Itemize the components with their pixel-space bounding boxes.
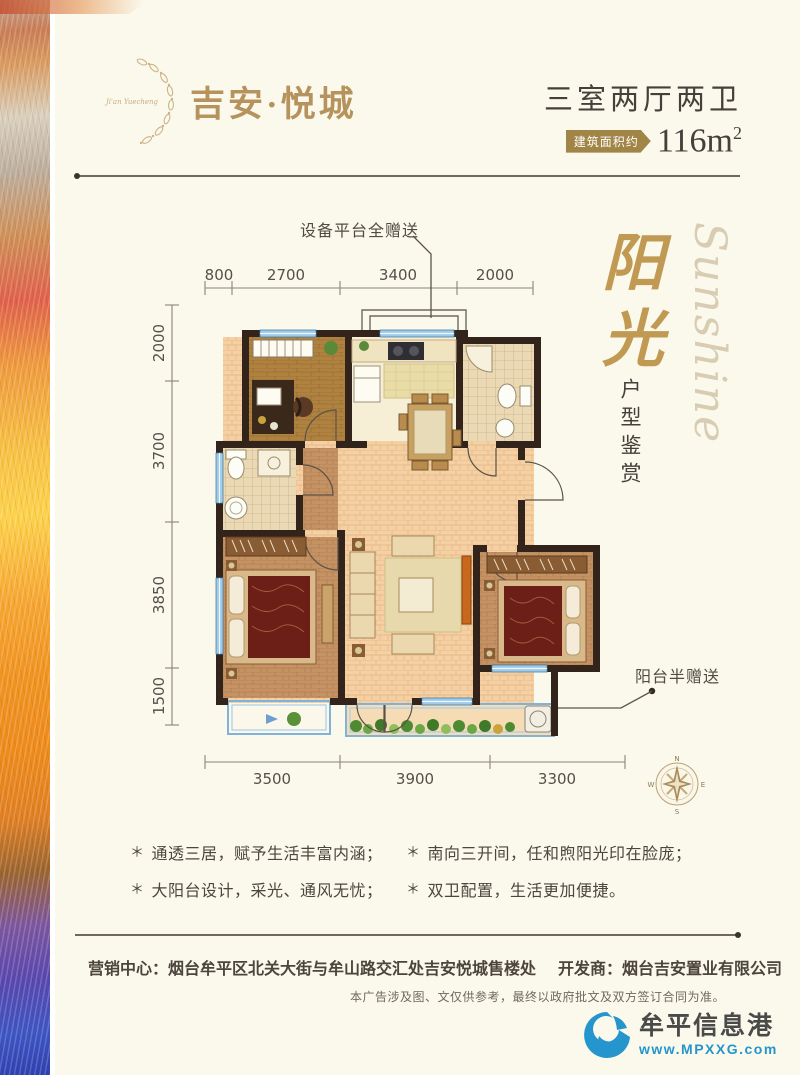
dim-bottom-3: 3300	[538, 770, 576, 788]
unit-type-title: 三室两厅两卫	[544, 76, 742, 118]
dim-left-3: 3850	[150, 576, 168, 614]
unit-info-block: 三室两厅两卫 建筑面积约 116m2	[544, 76, 742, 158]
brush-streaks-decoration	[0, 0, 150, 14]
poster-page: Ji'an Yuecheng 吉安·悦城 三室两厅两卫 建筑面积约 116m2	[0, 0, 800, 1075]
brand-name: 吉安·悦城	[190, 76, 357, 127]
floorplan-drawing: 800 2700 3400 2000 2000 3700 3850 1500 3…	[150, 200, 765, 825]
sunshine-english-title: Sunshine	[684, 222, 735, 492]
brand-block: Ji'an Yuecheng 吉安·悦城	[80, 52, 357, 150]
platform-callout: 设备平台全赠送	[300, 217, 419, 241]
compass-n: N	[674, 755, 679, 763]
feature-text: 南向三开间，任和煦阳光印在脸庞；	[428, 840, 692, 864]
dim-bottom-2: 3900	[396, 770, 434, 788]
dim-left-1: 2000	[150, 324, 168, 362]
site-logo-icon	[583, 1010, 631, 1060]
dim-left-4: 1500	[150, 677, 168, 715]
washing-machine	[525, 706, 551, 732]
dim-bottom-1: 3500	[253, 770, 291, 788]
feature-list: ＊ 通透三居，赋予生活丰富内涵； ＊ 大阳台设计，采光、通风无忧； ＊ 南向三开…	[130, 840, 692, 914]
dim-top-2: 2700	[267, 266, 305, 284]
bullet-icon: ＊	[130, 840, 145, 862]
area-superscript: 2	[733, 123, 742, 143]
divider-dot	[735, 932, 741, 938]
site-url: www.MPXXG.com	[639, 1041, 778, 1057]
feature-item: ＊ 大阳台设计，采光、通风无忧；	[130, 877, 406, 914]
area-value: 116m2	[657, 124, 742, 158]
site-watermark: 牟平信息港 www.MPXXG.com	[583, 1010, 778, 1060]
site-name: 牟平信息港	[639, 1013, 778, 1041]
feature-item: ＊ 双卫配置，生活更加便捷。	[406, 877, 692, 914]
dim-left-2: 3700	[150, 432, 168, 470]
compass-w: W	[648, 781, 655, 789]
bullet-icon: ＊	[130, 877, 145, 899]
compass-s: S	[675, 808, 680, 816]
dim-top-1: 800	[205, 266, 234, 284]
bay-plant	[287, 712, 301, 726]
footer-contact-line: 营销中心：烟台牟平区北关大街与牟山路交汇处吉安悦城售楼处 开发商：烟台吉安置业有…	[88, 955, 740, 979]
feature-text: 双卫配置，生活更加便捷。	[428, 877, 626, 901]
feature-text: 大阳台设计，采光、通风无忧；	[152, 877, 383, 901]
equipment-platform-outline	[362, 310, 466, 330]
bay-window-floor	[228, 703, 330, 733]
sales-center-text: 营销中心：烟台牟平区北关大街与牟山路交汇处吉安悦城售楼处	[88, 955, 536, 979]
feature-item: ＊ 南向三开间，任和煦阳光印在脸庞；	[406, 840, 692, 877]
feather-art-strip	[0, 0, 55, 1075]
area-tag-badge: 建筑面积约	[566, 130, 651, 153]
bottom-divider	[75, 934, 740, 936]
compass-icon: N E S W	[648, 755, 706, 816]
feature-text: 通透三居，赋予生活丰富内涵；	[152, 840, 383, 864]
feature-item: ＊ 通透三居，赋予生活丰富内涵；	[130, 840, 406, 877]
dim-top-4: 2000	[476, 266, 514, 284]
sunshine-chinese-title: 阳光	[596, 230, 658, 382]
bullet-icon: ＊	[406, 877, 421, 899]
developer-text: 开发商：烟台吉安置业有限公司	[558, 955, 782, 979]
layout-appreciation-subtitle: 户型鉴赏	[614, 378, 644, 490]
divider-dot	[74, 173, 80, 179]
dim-top-3: 3400	[379, 266, 417, 284]
balcony-callout: 阳台半赠送	[635, 663, 720, 687]
bullet-icon: ＊	[406, 840, 421, 862]
compass-e: E	[701, 781, 705, 789]
top-divider	[75, 175, 740, 177]
crescent-wreath-logo-icon: Ji'an Yuecheng	[80, 52, 176, 150]
logo-script-text: Ji'an Yuecheng	[104, 98, 159, 106]
disclaimer-text: 本广告涉及图、文仅供参考，最终以政府批文及双方签订合同为准。	[350, 988, 725, 1005]
